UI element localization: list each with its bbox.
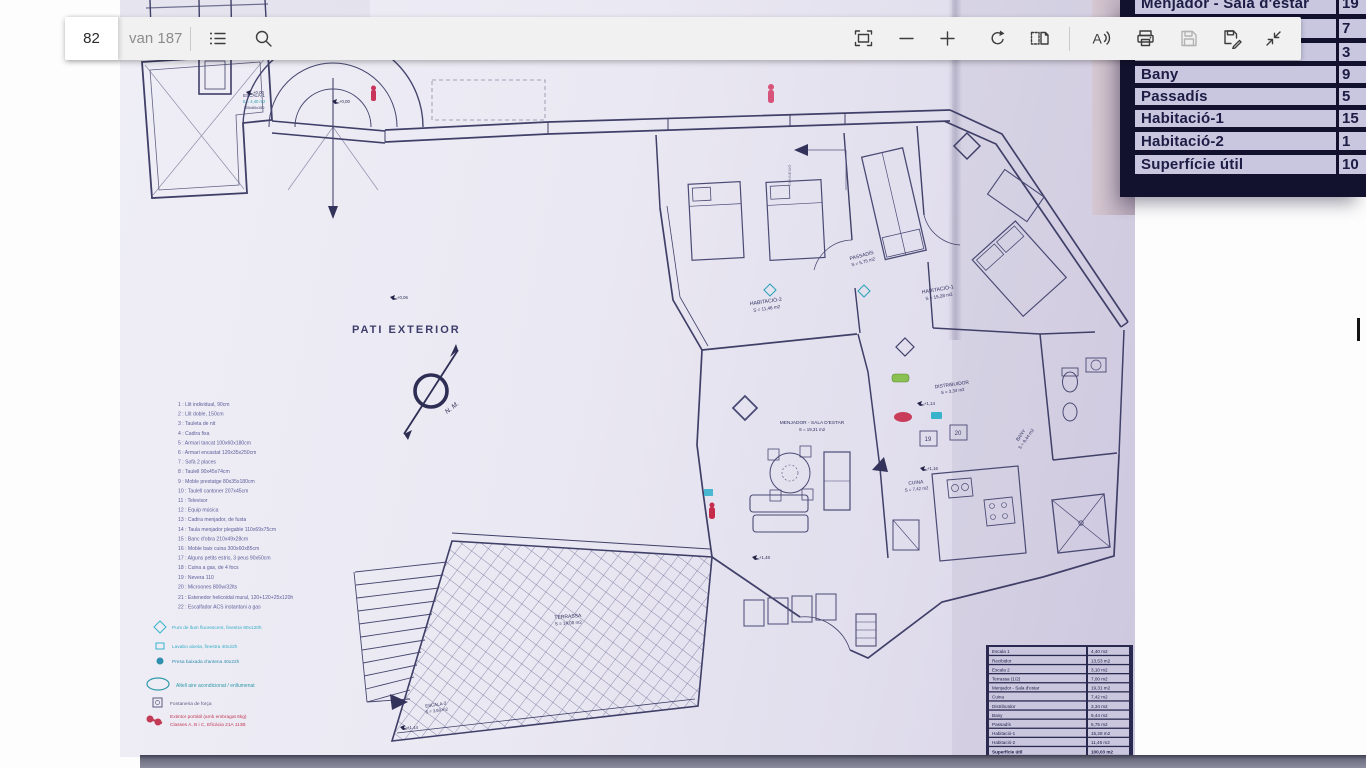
exit-fullscreen-button[interactable] bbox=[1252, 17, 1294, 60]
corridor-walls bbox=[385, 80, 950, 142]
svg-text:5 : Armari tancat 100x60x180cm: 5 : Armari tancat 100x60x180cm bbox=[178, 440, 251, 446]
svg-text:Menjador - Sala d'estar: Menjador - Sala d'estar bbox=[992, 686, 1040, 691]
svg-text:Habitació-1: Habitació-1 bbox=[992, 731, 1016, 736]
svg-text:12 : Equip música: 12 : Equip música bbox=[178, 508, 219, 514]
kitchen-tag: 20 bbox=[955, 431, 962, 437]
svg-text:A: A bbox=[1092, 31, 1102, 47]
svg-text:16 : Moble baix cuina 300x60x8: 16 : Moble baix cuina 300x60x85cm bbox=[178, 546, 259, 552]
save-button[interactable] bbox=[1167, 17, 1209, 60]
toolbar-divider bbox=[190, 27, 191, 51]
page-number-value: 82 bbox=[83, 30, 100, 47]
svg-text:Bany: Bany bbox=[992, 713, 1003, 718]
svg-text:10 : Taulell cantoner 207x45cm: 10 : Taulell cantoner 207x45cm bbox=[178, 488, 248, 494]
svg-text:1 : Llit individual, 90cm: 1 : Llit individual, 90cm bbox=[178, 402, 230, 408]
inset-row: Passadís5 bbox=[1135, 88, 1366, 105]
svg-text:Altell aire acondicionat / enl: Altell aire acondicionat / enllumenat bbox=[176, 683, 255, 689]
inset-row: Habitació-21 bbox=[1135, 132, 1366, 150]
svg-text:13,53 m2: 13,53 m2 bbox=[1091, 658, 1111, 663]
contents-icon bbox=[207, 28, 228, 49]
page-layout-button[interactable] bbox=[1018, 17, 1060, 60]
svg-text:8 : Taulell 90x45x74cm: 8 : Taulell 90x45x74cm bbox=[178, 469, 230, 475]
kitchen-tag: 19 bbox=[925, 437, 932, 443]
spiral-steps bbox=[243, 37, 423, 219]
svg-text:Distribuïdor: Distribuïdor bbox=[992, 704, 1016, 709]
svg-text:19 : Nevera 110: 19 : Nevera 110 bbox=[178, 575, 214, 581]
svg-text:Cuina: Cuina bbox=[992, 695, 1004, 700]
search-icon bbox=[253, 28, 274, 49]
svg-text:+1,48: +1,48 bbox=[759, 555, 770, 560]
inset-row: Superfície útil10 bbox=[1135, 155, 1366, 174]
svg-text:Habitació-2: Habitació-2 bbox=[992, 740, 1016, 745]
pdf-toolbar: 82 van 187 A bbox=[65, 17, 1301, 60]
svg-text:MENJADOR - SALA D'ESTAR: MENJADOR - SALA D'ESTAR bbox=[780, 420, 845, 426]
svg-text:3,34 m2: 3,34 m2 bbox=[1091, 704, 1108, 709]
svg-text:100,03 m2: 100,03 m2 bbox=[1091, 749, 1113, 754]
compass-label: N. M. bbox=[444, 400, 461, 415]
svg-text:Lavabo aixeta, finestra 40x22h: Lavabo aixeta, finestra 40x22h bbox=[172, 644, 238, 650]
svg-text:7,00 m2: 7,00 m2 bbox=[1091, 677, 1108, 682]
compass-icon: N. M. bbox=[404, 344, 461, 440]
connexio-annotation: CONNEXIÓ bbox=[787, 144, 846, 190]
area-table: Escala 14,40 m2 Recibidor13,53 m2 Escala… bbox=[986, 645, 1133, 757]
search-button[interactable] bbox=[242, 17, 284, 60]
page-number-input[interactable]: 82 bbox=[65, 17, 118, 60]
svg-text:18 : Cuina a gas, de 4 focs: 18 : Cuina a gas, de 4 focs bbox=[178, 565, 239, 571]
read-aloud-icon: A bbox=[1090, 28, 1111, 49]
svg-text:2 : Llit doble, 150cm: 2 : Llit doble, 150cm bbox=[178, 412, 224, 418]
svg-text:Passadís: Passadís bbox=[992, 722, 1012, 727]
svg-text:S = 19,31 m2: S = 19,31 m2 bbox=[799, 427, 826, 432]
svg-text:6 : Armari encastat 120x35x250: 6 : Armari encastat 120x35x250cm bbox=[178, 450, 256, 456]
svg-text:4,40 m2: 4,40 m2 bbox=[1091, 649, 1108, 654]
save-icon bbox=[1178, 28, 1199, 49]
inset-row: Menjador - Sala d'estar19 bbox=[1135, 0, 1366, 14]
page-layout-icon bbox=[1029, 28, 1050, 49]
svg-text:Classes A, B i C, Eficàcia 21A: Classes A, B i C, Eficàcia 21A 113B bbox=[170, 722, 246, 728]
svg-text:+1,14: +1,14 bbox=[924, 401, 935, 406]
svg-text:+1,16: +1,16 bbox=[927, 466, 938, 471]
svg-text:+1,44: +1,44 bbox=[407, 725, 418, 730]
svg-text:22 : Escalfador ACS instantani: 22 : Escalfador ACS instantani a gas bbox=[178, 605, 261, 611]
svg-text:17 : Alguns petits estris, 3 p: 17 : Alguns petits estris, 3 peus 90x50c… bbox=[178, 556, 271, 562]
svg-text:3,10 m2: 3,10 m2 bbox=[1091, 667, 1108, 672]
svg-text:4 : Cadira fixa: 4 : Cadira fixa bbox=[178, 431, 210, 437]
legend: 1 : Llit individual, 90cm 2 : Llit doble… bbox=[178, 402, 293, 611]
print-icon bbox=[1135, 28, 1156, 49]
scanned-plan-page: 19 20 N. M. CONNEXIÓ ESCALA-1 S = 4,40 m… bbox=[120, 0, 1135, 757]
svg-text:CONNEXIÓ: CONNEXIÓ bbox=[787, 165, 792, 186]
svg-text:Superfície útil: Superfície útil bbox=[992, 749, 1022, 754]
legend-notes: Punt de llum fluorescent, finestra 90x12… bbox=[147, 621, 262, 728]
svg-text:20 : Microones 800w/32lts: 20 : Microones 800w/32lts bbox=[178, 584, 238, 590]
zoom-out-button[interactable] bbox=[885, 17, 927, 60]
svg-text:Presa baixada d'antena 40x22h: Presa baixada d'antena 40x22h bbox=[172, 659, 240, 665]
page-count-label: van 187 bbox=[122, 17, 182, 60]
rotate-button[interactable] bbox=[976, 17, 1018, 60]
svg-text:7 : Sofà 2 places: 7 : Sofà 2 places bbox=[178, 460, 216, 466]
inset-row: Habitació-115 bbox=[1135, 110, 1366, 127]
svg-text:9 : Moble prestatge 80x35x180c: 9 : Moble prestatge 80x35x180cm bbox=[178, 479, 255, 485]
svg-text:21 : Estenedor helicoidal mura: 21 : Estenedor helicoidal mural, 120+120… bbox=[178, 595, 293, 601]
rotate-icon bbox=[987, 28, 1008, 49]
pati-exterior-label: PATI EXTERIOR bbox=[352, 324, 461, 336]
stray-caret bbox=[1357, 318, 1360, 341]
zoom-in-button[interactable] bbox=[926, 17, 968, 60]
svg-text:Punt de llum fluorescent, fine: Punt de llum fluorescent, finestra 90x12… bbox=[172, 625, 262, 631]
svg-text:15 : Banc d'obra 210x49x28cm: 15 : Banc d'obra 210x49x28cm bbox=[178, 536, 248, 542]
toolbar-divider bbox=[1069, 27, 1070, 51]
svg-text:9,44 m2: 9,44 m2 bbox=[1091, 713, 1108, 718]
contents-button[interactable] bbox=[196, 17, 238, 60]
svg-text:Escala 1: Escala 1 bbox=[992, 649, 1010, 654]
photo-bottom-edge bbox=[140, 755, 1366, 768]
zoom-out-icon bbox=[896, 28, 917, 49]
exit-fullscreen-icon bbox=[1263, 28, 1284, 49]
svg-text:+0,00: +0,00 bbox=[253, 90, 264, 95]
svg-text:7,42 m2: 7,42 m2 bbox=[1091, 695, 1108, 700]
svg-text:14 : Taula menjador plegable 1: 14 : Taula menjador plegable 110x69x75cm bbox=[178, 527, 276, 533]
svg-text:11 : Televisor: 11 : Televisor bbox=[178, 498, 208, 504]
svg-text:100x60x150: 100x60x150 bbox=[244, 106, 265, 110]
save-as-icon bbox=[1222, 28, 1243, 49]
svg-text:Extintor portàtil (amb embraga: Extintor portàtil (amb embragat 6kg) bbox=[170, 714, 247, 720]
inset-row: Bany9 bbox=[1135, 66, 1366, 83]
svg-text:Fontaneria de força: Fontaneria de força bbox=[170, 701, 212, 707]
fit-to-page-button[interactable] bbox=[842, 17, 884, 60]
svg-text:15,28 m2: 15,28 m2 bbox=[1091, 731, 1111, 736]
svg-text:19,31 m2: 19,31 m2 bbox=[1091, 686, 1111, 691]
print-button[interactable] bbox=[1124, 17, 1166, 60]
svg-text:+0,06: +0,06 bbox=[397, 295, 408, 300]
svg-text:5,75 m2: 5,75 m2 bbox=[1091, 722, 1108, 727]
svg-text:Terrassa (1/2): Terrassa (1/2) bbox=[992, 677, 1021, 682]
svg-text:Escala 2: Escala 2 bbox=[992, 667, 1010, 672]
fit-to-page-icon bbox=[853, 28, 874, 49]
svg-text:13 : Cadira menjador, de fusta: 13 : Cadira menjador, de fusta bbox=[178, 517, 246, 523]
read-aloud-button[interactable]: A bbox=[1079, 17, 1121, 60]
save-as-button[interactable] bbox=[1211, 17, 1253, 60]
svg-text:3 : Tauleta de nit: 3 : Tauleta de nit bbox=[178, 421, 216, 427]
svg-text:Recibidor: Recibidor bbox=[992, 658, 1012, 663]
svg-text:S = 4,40 m2: S = 4,40 m2 bbox=[243, 99, 266, 104]
zoom-in-icon bbox=[937, 28, 958, 49]
svg-text:11,46 m2: 11,46 m2 bbox=[1091, 740, 1110, 745]
svg-text:+0,00: +0,00 bbox=[339, 99, 350, 104]
